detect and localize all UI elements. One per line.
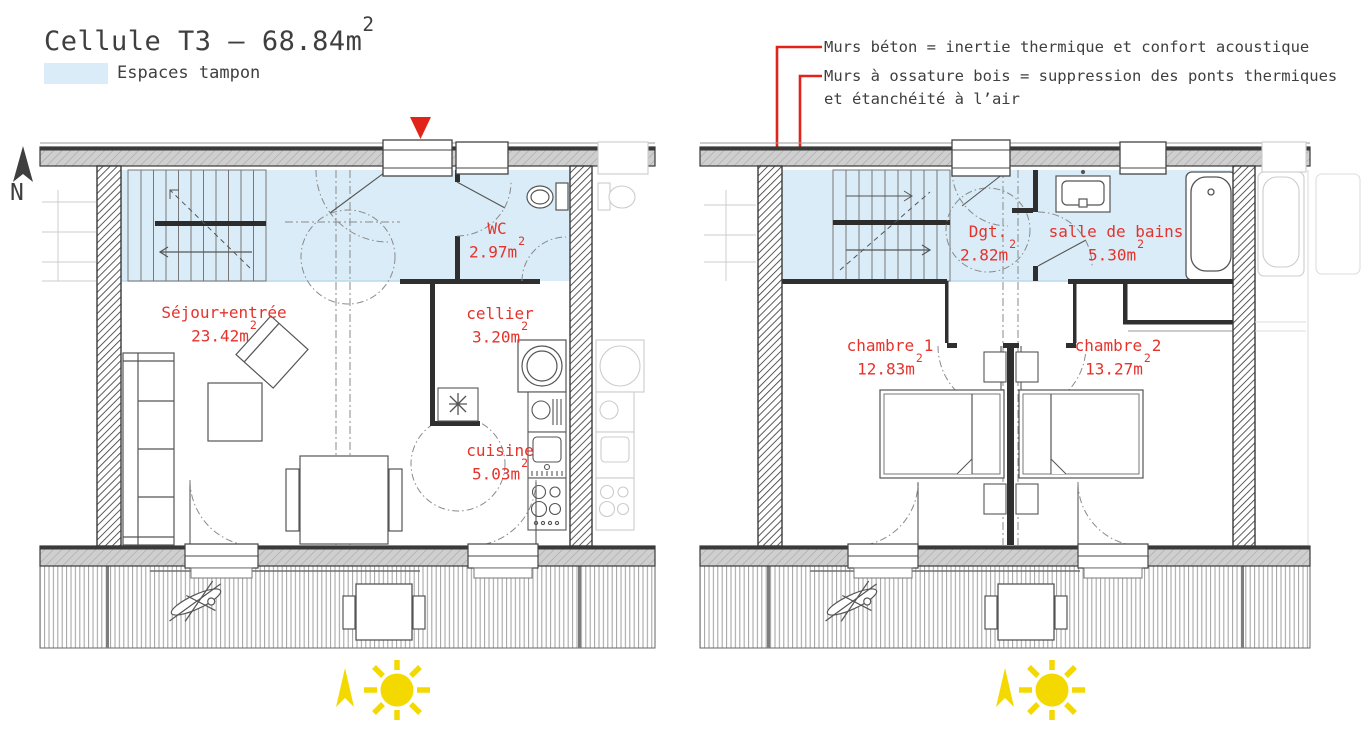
room-label-salle-de-bains: salle de bains 5.30m2	[1049, 222, 1184, 264]
entry-door-box	[383, 140, 452, 176]
sun-icon-ground	[325, 660, 435, 720]
neighbour-window-ghost-upper	[1262, 142, 1306, 172]
facade-wall-bottom-upper	[700, 546, 1310, 566]
terrace-door-bedroom1	[852, 482, 918, 546]
upper-entry-door-box	[952, 140, 1010, 176]
room-label-chambre-1: chambre 1 12.83m2	[847, 336, 934, 378]
kitchen-dish-area	[528, 392, 566, 432]
neighbour-ghost-right-upper	[1255, 170, 1360, 545]
room-label-chambre-2: chambre 2 13.27m2	[1075, 336, 1162, 378]
bed-2	[1019, 390, 1143, 478]
closet-bedroom2	[1123, 281, 1233, 331]
terrace-door-sejour	[190, 480, 256, 546]
neighbour-ghost-left	[42, 190, 96, 281]
washbasin	[1056, 171, 1110, 213]
stove	[528, 478, 566, 530]
coffee-table	[208, 383, 262, 441]
sofa	[123, 353, 174, 545]
room-label-cuisine: cuisine 5.03m2	[466, 441, 533, 483]
bed-1	[880, 390, 1004, 478]
terrace-door-box-cuisine	[468, 544, 538, 578]
terrace-door-box-sejour	[185, 544, 258, 578]
annotation-wood-walls-line2: et étanchéité à l’air	[824, 90, 1020, 108]
legend-buffer-label: Espaces tampon	[117, 63, 260, 83]
sun-icon-upper	[985, 660, 1095, 720]
plan-ground-floor	[35, 110, 665, 655]
terrace-door-box-bedroom2	[1078, 544, 1148, 578]
room-label-wc: WC 2.97m2	[469, 219, 525, 261]
neighbour-ghost-left-upper	[704, 190, 756, 281]
page-title: Cellule T3 – 68.84m2	[44, 22, 375, 57]
floor-plan-sheet: Cellule T3 – 68.84m2 Espaces tampon Murs…	[0, 0, 1366, 746]
dining-table	[286, 456, 402, 544]
room-label-degagement: Dgt. 2.82m2	[960, 222, 1016, 264]
wall-below-bath	[1068, 279, 1233, 284]
concrete-wall-right-upper	[1233, 166, 1255, 546]
terrace-door-cuisine	[470, 480, 536, 546]
terrace-door-bedroom2	[1078, 482, 1142, 546]
bathtub	[1186, 172, 1236, 280]
annotation-wood-walls-line1: Murs à ossature bois = suppression des p…	[824, 67, 1337, 85]
facade-wall-bottom-ground	[40, 546, 655, 566]
entrance-arrow-icon	[410, 117, 431, 139]
facade-wall-top-ground	[40, 143, 655, 166]
legend-buffer-swatch	[44, 63, 108, 84]
concrete-wall-right-ground	[570, 166, 592, 546]
cellier-walls	[430, 279, 480, 426]
neighbour-window-ghost	[598, 142, 648, 174]
room-label-sejour-entree: Séjour+entrée 23.42m2	[161, 303, 286, 345]
neighbour-ghost-right	[596, 183, 644, 530]
north-label: N	[10, 180, 24, 206]
annotation-concrete-walls: Murs béton = inertie thermique et confor…	[824, 38, 1309, 56]
plan-upper-floor	[698, 110, 1366, 655]
terrace-door-box-bedroom1	[848, 544, 918, 578]
concrete-wall-left-ground	[97, 166, 121, 546]
wall-below-stairs	[782, 279, 947, 284]
entry-window-box	[456, 142, 508, 174]
bathroom-window-box	[1120, 142, 1166, 174]
concrete-wall-left-upper	[758, 166, 782, 546]
south-arrow-icon	[996, 668, 1014, 707]
south-arrow-icon	[336, 668, 354, 707]
room-label-cellier: cellier 3.20m2	[466, 304, 533, 346]
washing-machine	[518, 340, 566, 392]
